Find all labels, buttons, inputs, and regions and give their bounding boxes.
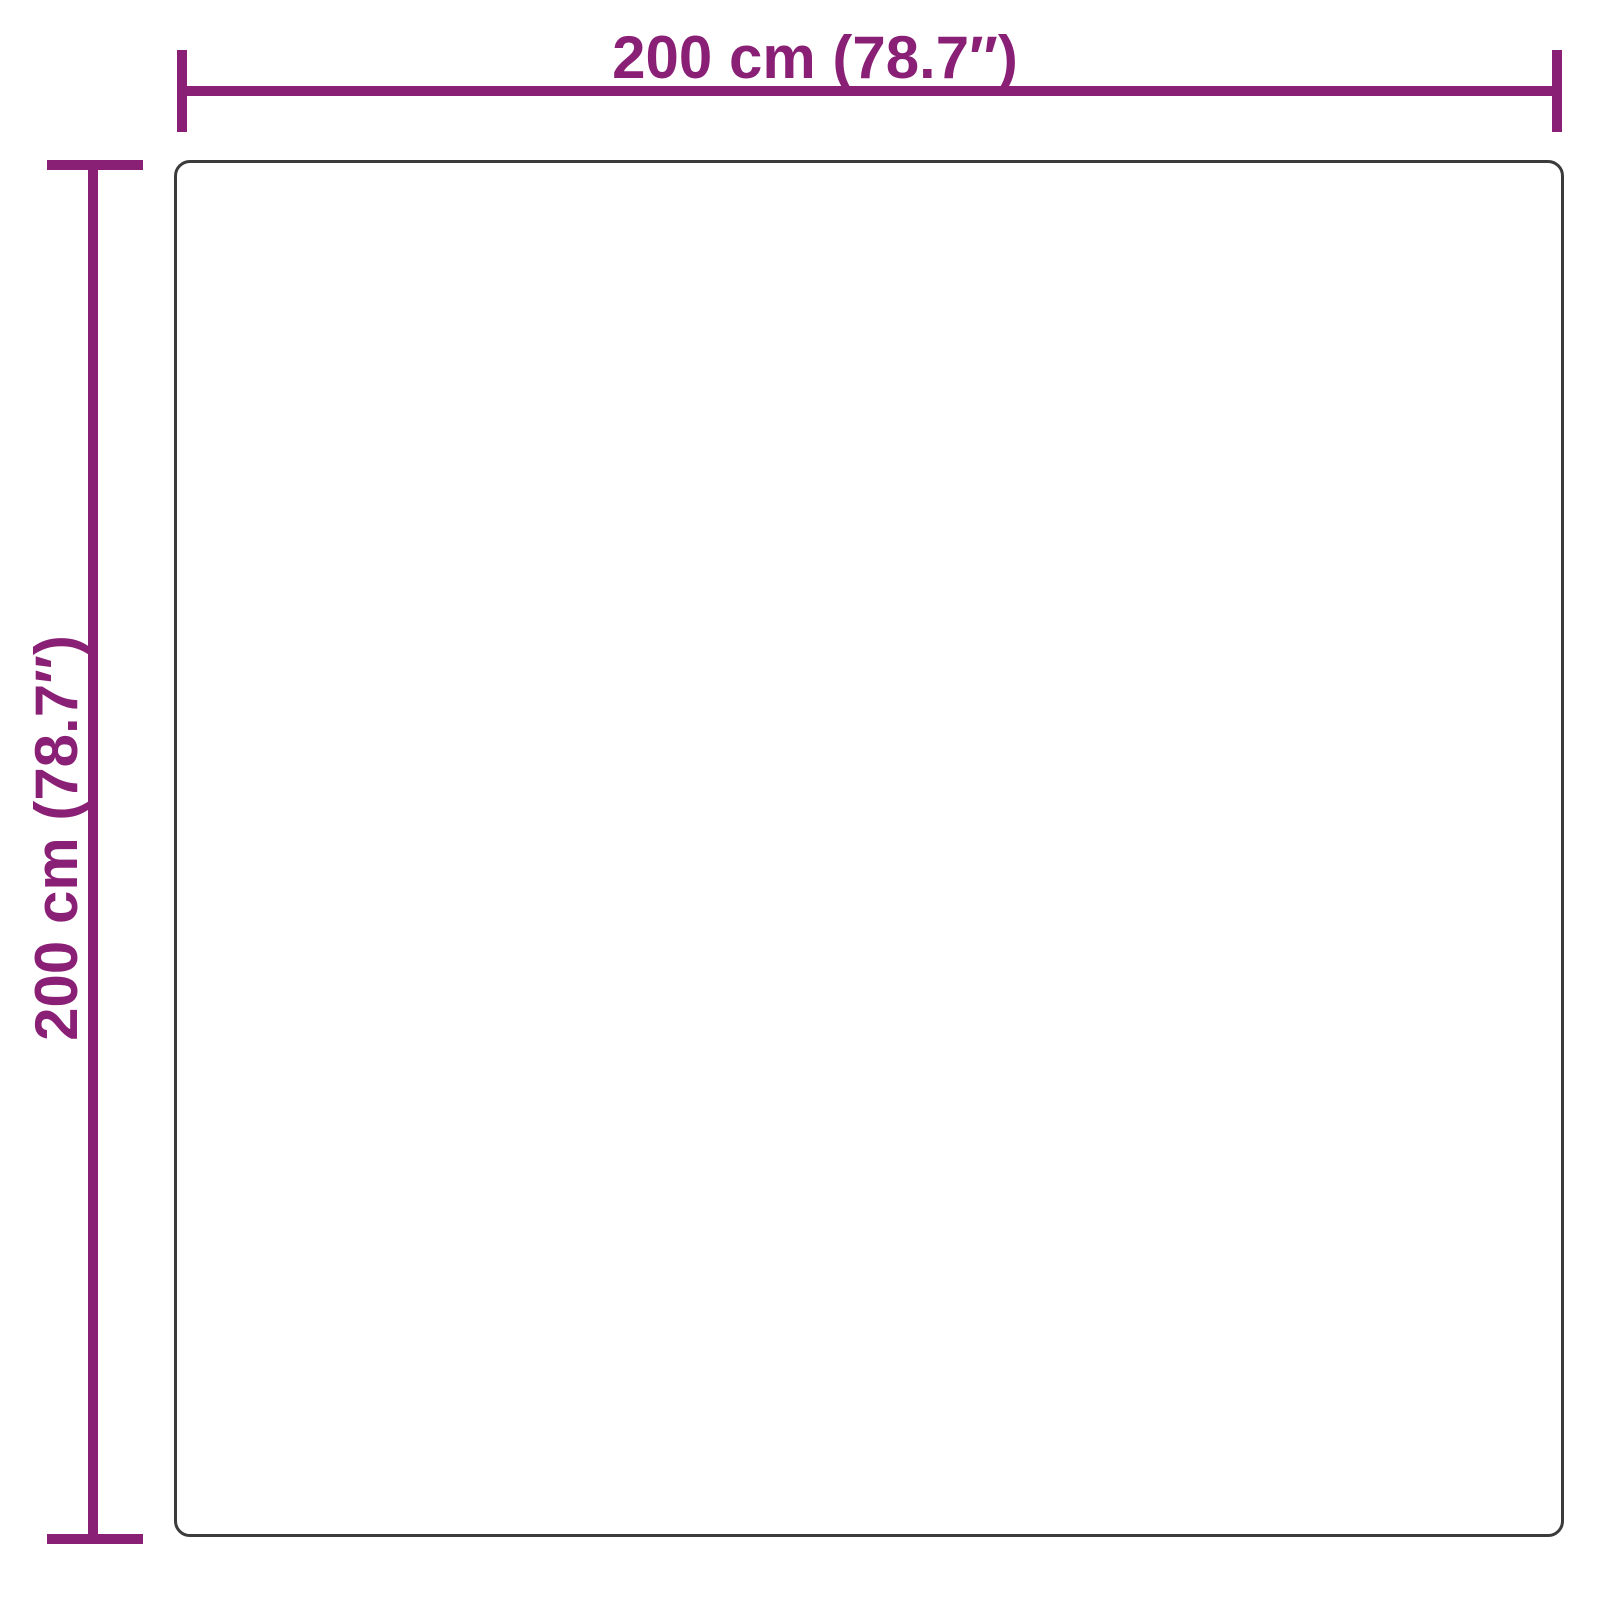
width-dimension-end-cap	[1552, 50, 1562, 132]
dimension-diagram: 200 cm (78.7″) 200 cm (78.7″)	[0, 0, 1600, 1600]
width-dimension-label: 200 cm (78.7″)	[612, 28, 1018, 88]
height-dimension-label: 200 cm (78.7″)	[27, 635, 87, 1041]
height-dimension-end-cap	[47, 1534, 143, 1544]
product-outline	[174, 160, 1564, 1537]
